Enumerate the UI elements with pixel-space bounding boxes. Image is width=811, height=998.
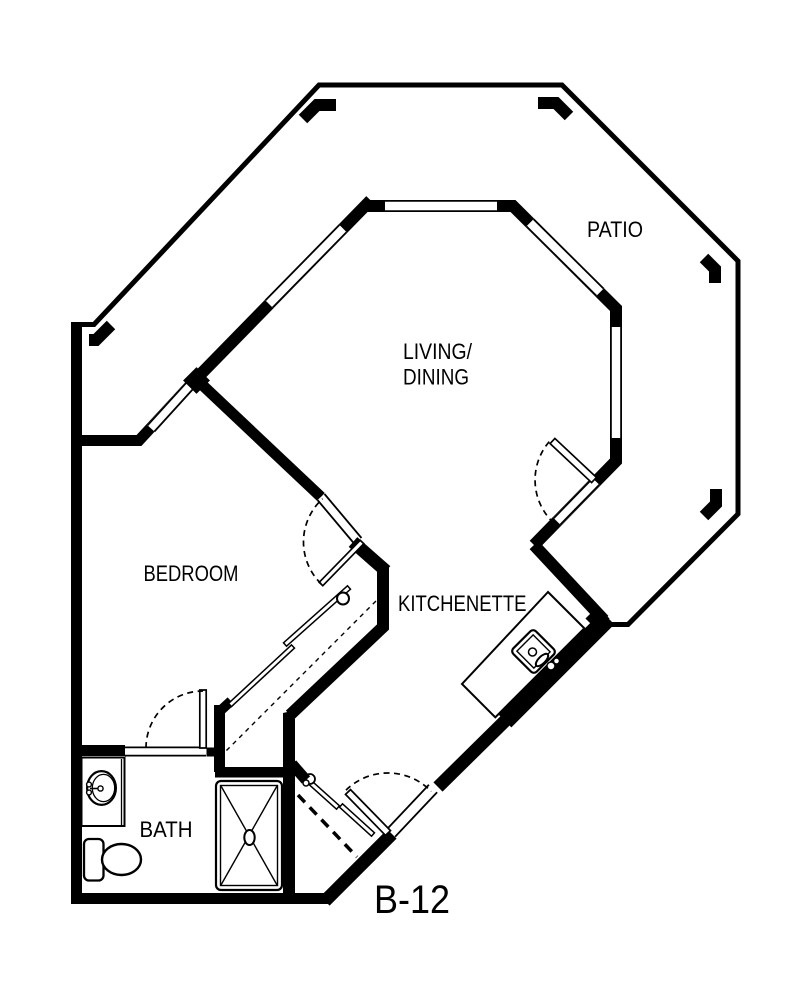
svg-text:BEDROOM: BEDROOM (144, 561, 239, 586)
svg-text:DINING: DINING (403, 364, 469, 389)
svg-text:BATH: BATH (140, 817, 193, 842)
svg-text:B-12: B-12 (374, 878, 450, 922)
svg-text:KITCHENETTE: KITCHENETTE (398, 591, 527, 616)
svg-text:LIVING/: LIVING/ (403, 339, 473, 364)
svg-text:PATIO: PATIO (587, 217, 643, 242)
